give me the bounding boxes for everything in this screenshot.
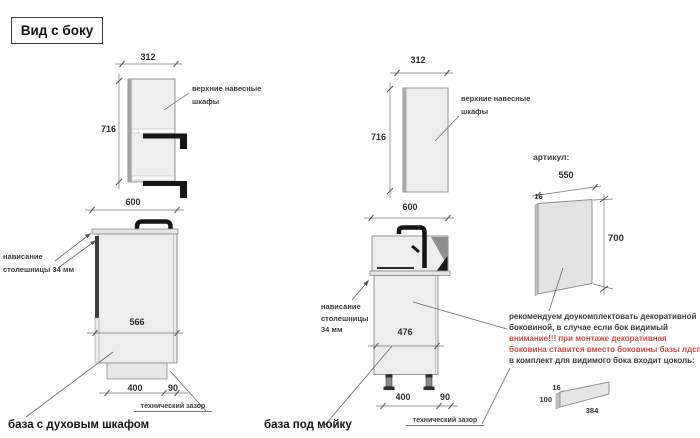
oven-door-edge (95, 236, 99, 318)
cabinet-legs (384, 375, 435, 391)
mid-wall-cabinet-drawing (387, 70, 459, 198)
label-left-wall-cabinet: верхние навесные шкафы (192, 82, 261, 108)
label-tech-gap-mid: технический зазор (406, 417, 484, 426)
dim-sink-base-depth: 476 (386, 327, 424, 337)
dim-plinth-thickness: 16 (547, 383, 566, 392)
caption-oven-base: база с духовым шкафом (8, 419, 149, 431)
dim-plinth-length: 384 (576, 406, 608, 415)
dim-mid-wall-width: 312 (397, 55, 439, 65)
note-line-1: рекомендуем доукомплектовать декоративно… (509, 311, 700, 322)
dim-oven-gap: 90 (162, 383, 184, 393)
caption-sink-base: база под мойку (264, 419, 352, 431)
dim-sink-gap: 90 (434, 392, 456, 402)
dim-plinth-height: 100 (531, 395, 552, 404)
dim-panel-height: 700 (608, 233, 634, 244)
note-line-3: внимание!!! при монтаже декоративная (509, 333, 700, 344)
label-article: артикул: (533, 152, 569, 162)
oven-plinth (107, 363, 167, 379)
note-line-2: боковиной, в случае если бок видимый (509, 322, 700, 333)
note-block: рекомендуем доукомплектовать декоративно… (509, 311, 700, 366)
dim-oven-plinth: 400 (113, 383, 157, 393)
label-countertop-overhang-mid: нависание столешницы 34 мм (321, 301, 368, 336)
note-line-5: в комплект для видимого бока входит цоко… (509, 355, 700, 366)
decorative-side-panel-drawing (532, 184, 613, 311)
dim-oven-base-width: 600 (112, 197, 154, 207)
dim-left-wall-width: 312 (128, 52, 168, 62)
left-wall-cabinet-drawing (115, 61, 189, 198)
dim-mid-wall-height: 716 (362, 132, 386, 142)
view-title: Вид с боку (11, 17, 103, 44)
technical-drawing-page: Вид с боку 312 716 верхние навесные шкаф… (0, 0, 700, 438)
label-tech-gap-left: технический зазор (134, 403, 212, 412)
drawing-canvas (0, 0, 700, 438)
dim-left-wall-height: 716 (94, 124, 116, 134)
label-mid-wall-cabinet: верхние навесные шкафы (461, 92, 530, 118)
dim-sink-base-width: 600 (390, 202, 430, 212)
note-line-4: боковина ставится вместо боковины базы л… (509, 344, 700, 355)
dim-panel-width: 550 (550, 170, 582, 180)
dim-sink-plinth: 400 (382, 392, 424, 402)
label-countertop-overhang-left: нависание столешницы 34 мм (3, 250, 74, 276)
dim-oven-base-depth: 566 (117, 317, 157, 327)
dim-panel-thickness: 16 (530, 192, 547, 201)
